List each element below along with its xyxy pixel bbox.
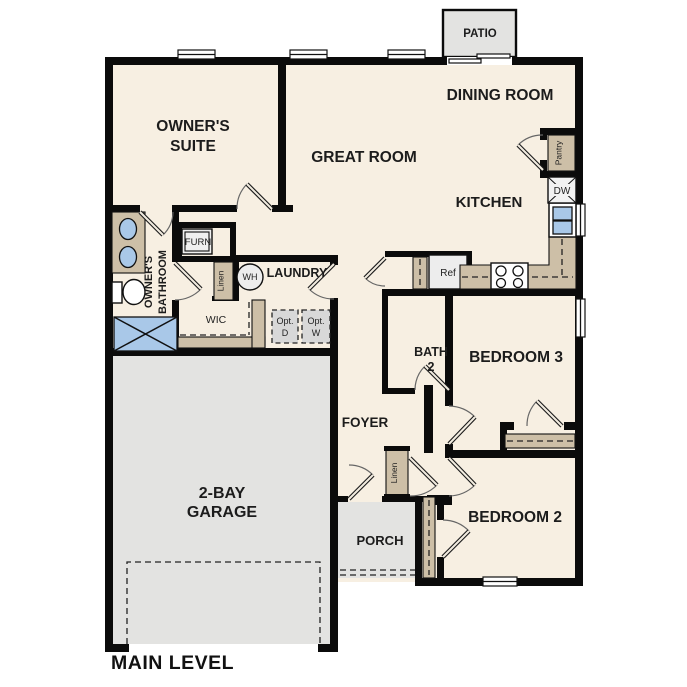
wall-bath2-left bbox=[382, 289, 388, 394]
floor-plan-svg: PATIO DINING ROOM GREAT ROOM KITCHEN OWN… bbox=[0, 0, 687, 687]
wall-suite-bottom-c bbox=[272, 205, 293, 212]
foyer-label: FOYER bbox=[342, 415, 389, 430]
wic-label: WIC bbox=[206, 314, 227, 326]
wall-laundry-right-b bbox=[330, 298, 338, 348]
wall-suite-bottom-a bbox=[113, 205, 140, 212]
water-heater-label: WH bbox=[243, 272, 258, 282]
porch-label: PORCH bbox=[357, 533, 404, 548]
wall-foyer-hall bbox=[424, 385, 433, 453]
garage-label-2: GARAGE bbox=[187, 504, 258, 521]
garage-label-1: 2-BAY bbox=[199, 485, 246, 502]
window-bedroom3 bbox=[576, 299, 585, 337]
bath1-sink-1 bbox=[120, 219, 137, 240]
window-great-room bbox=[290, 50, 327, 59]
opt-washer-box bbox=[302, 310, 330, 343]
stove bbox=[491, 263, 528, 289]
bath2-label-2: 2 bbox=[428, 360, 435, 374]
dishwasher-label: DW bbox=[554, 186, 571, 197]
bed3-closet-shelf bbox=[505, 434, 575, 448]
furnace-label: FURN bbox=[185, 237, 212, 248]
wall-porch-right bbox=[415, 496, 422, 586]
wall-furn-top bbox=[176, 222, 236, 228]
wall-bed2-closet-front-b bbox=[437, 557, 444, 578]
refrigerator-label: Ref bbox=[440, 268, 456, 279]
bed2-closet-shelf bbox=[423, 497, 435, 578]
dining-room-label: DINING ROOM bbox=[447, 87, 554, 104]
kitchen-label: KITCHEN bbox=[456, 194, 523, 211]
bedroom3-label: BEDROOM 3 bbox=[469, 349, 563, 366]
window-dining bbox=[388, 50, 425, 59]
floor-plan-page: PATIO DINING ROOM GREAT ROOM KITCHEN OWN… bbox=[0, 0, 687, 687]
window-bedroom2 bbox=[483, 577, 517, 586]
wall-bed2-closet-front-a bbox=[437, 505, 444, 520]
wall-bed3-closet-top-b bbox=[564, 422, 576, 430]
opt-dryer-label-2: D bbox=[282, 328, 289, 338]
bath1-toilet bbox=[112, 280, 145, 305]
wall-laundry-top bbox=[236, 255, 338, 262]
garage-door-opening bbox=[129, 644, 318, 652]
bedroom2-label: BEDROOM 2 bbox=[468, 509, 562, 526]
owners-bathroom-label-1: OWNER'S bbox=[143, 256, 155, 308]
bath2-label-1: BATH bbox=[414, 345, 448, 359]
floor-layer bbox=[109, 10, 579, 648]
opt-washer-label-1: Opt. bbox=[307, 316, 324, 326]
owners-bathroom-label-2: BATHROOM bbox=[157, 250, 169, 314]
owners-suite-label-2: SUITE bbox=[170, 138, 216, 155]
bath1-sink-2 bbox=[120, 247, 137, 268]
kitchen-sink bbox=[549, 203, 576, 237]
patio-label: PATIO bbox=[463, 28, 496, 40]
wall-kitchen-bath bbox=[382, 289, 583, 296]
coat-closet-shelf bbox=[413, 257, 427, 289]
wall-furn-bottom bbox=[176, 256, 236, 262]
window-suite bbox=[178, 50, 215, 59]
opt-dryer-box bbox=[272, 310, 298, 343]
wall-suite-bottom-b bbox=[173, 205, 237, 212]
bath1-shower bbox=[114, 317, 177, 351]
opt-washer-label-2: W bbox=[312, 328, 321, 338]
window-kitchen-sink bbox=[576, 204, 585, 236]
laundry-label: LAUNDRY bbox=[267, 266, 328, 280]
linen-foyer-label: Linen bbox=[389, 462, 399, 483]
wall-bath2-bottom bbox=[382, 388, 415, 394]
owners-suite-label-1: OWNER'S bbox=[156, 118, 229, 135]
opt-dryer-label-1: Opt. bbox=[276, 316, 293, 326]
pantry-label: Pantry bbox=[554, 140, 564, 165]
linen-laundry-label: Linen bbox=[216, 270, 226, 291]
wall-suite-right bbox=[278, 57, 286, 212]
wall-bed3-bed2 bbox=[451, 450, 583, 458]
wall-porch-top-a bbox=[338, 496, 348, 502]
plan-title: MAIN LEVEL bbox=[111, 652, 234, 674]
great-room-label: GREAT ROOM bbox=[311, 149, 417, 166]
wall-garage-right bbox=[330, 348, 338, 652]
wall-garage-bottom-left bbox=[105, 644, 129, 652]
wall-pantry-left-a bbox=[540, 128, 547, 140]
